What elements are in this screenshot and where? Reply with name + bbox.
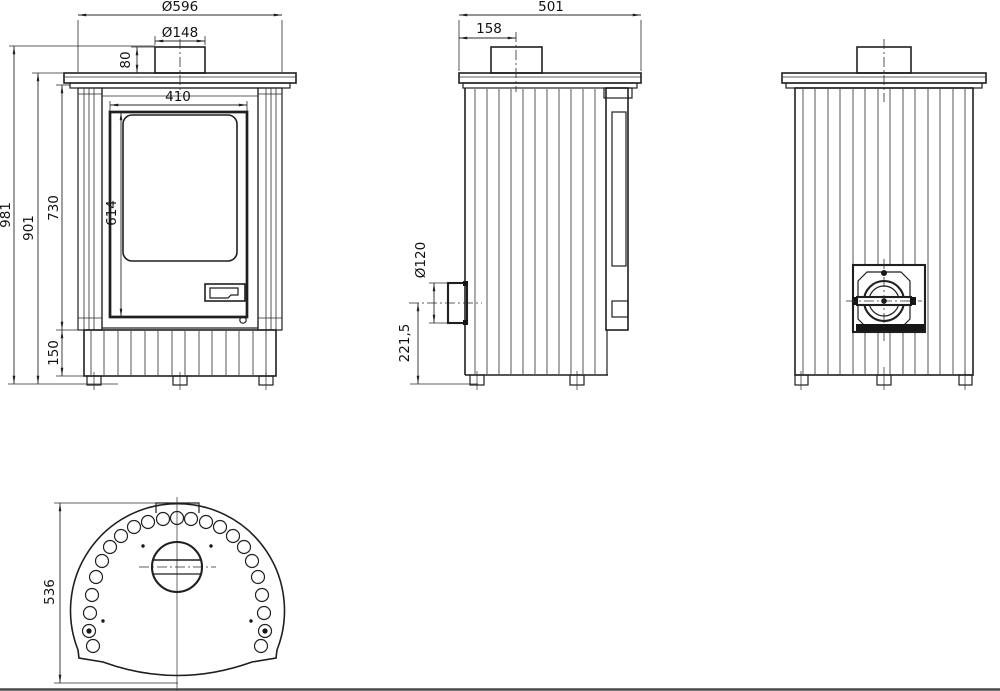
door-glass	[123, 115, 237, 261]
dim-label-front-total-width: Ø596	[162, 0, 198, 15]
feet-front	[87, 372, 273, 390]
door-profile	[606, 88, 628, 330]
dim-label-inlet-height: 221,5	[397, 324, 413, 363]
feet-rear	[795, 367, 972, 390]
stove-dimension-drawing: Ø596 Ø148 80 410 614 730 901 981 150	[0, 0, 1000, 691]
side-view: 501 158 Ø120 221,5	[397, 0, 641, 390]
front-view: Ø596 Ø148 80 410 614 730 901 981 150	[0, 0, 296, 390]
dim-label-collar-height: 80	[118, 51, 134, 68]
top-plate-outline	[70, 504, 284, 676]
side-ribs	[475, 89, 595, 374]
dim-label-inlet-diameter: Ø120	[413, 242, 429, 278]
dim-label-body-height: 901	[21, 215, 37, 241]
dim-label-plinth-height: 150	[46, 340, 62, 366]
right-pilaster	[258, 88, 282, 330]
top-plate-side	[459, 73, 641, 83]
dim-label-flue-diameter: Ø148	[162, 25, 198, 41]
fixing-bolt-left	[86, 628, 91, 633]
dim-label-flue-offset: 158	[476, 21, 502, 37]
door-panel	[102, 88, 258, 328]
rear-air-inlet	[846, 259, 925, 341]
dim-label-glass-height: 614	[104, 200, 120, 226]
rear-view	[782, 39, 986, 390]
left-pilaster	[78, 88, 102, 330]
plinth	[84, 330, 276, 376]
door-glass-profile	[612, 112, 626, 266]
door-handle	[210, 288, 238, 298]
dim-label-door-width: 410	[165, 89, 191, 105]
top-view: 536	[42, 497, 285, 691]
dim-label-total-depth: 501	[538, 0, 564, 15]
fixing-bolt-right	[262, 628, 267, 633]
door-frame	[110, 112, 247, 317]
dim-label-door-height: 730	[46, 195, 62, 221]
technical-drawing-page: Ø596 Ø148 80 410 614 730 901 981 150	[0, 0, 1000, 691]
flue-collar-side	[491, 47, 542, 73]
dim-label-total-height: 981	[0, 202, 14, 228]
dim-label-top-depth: 536	[42, 579, 58, 605]
